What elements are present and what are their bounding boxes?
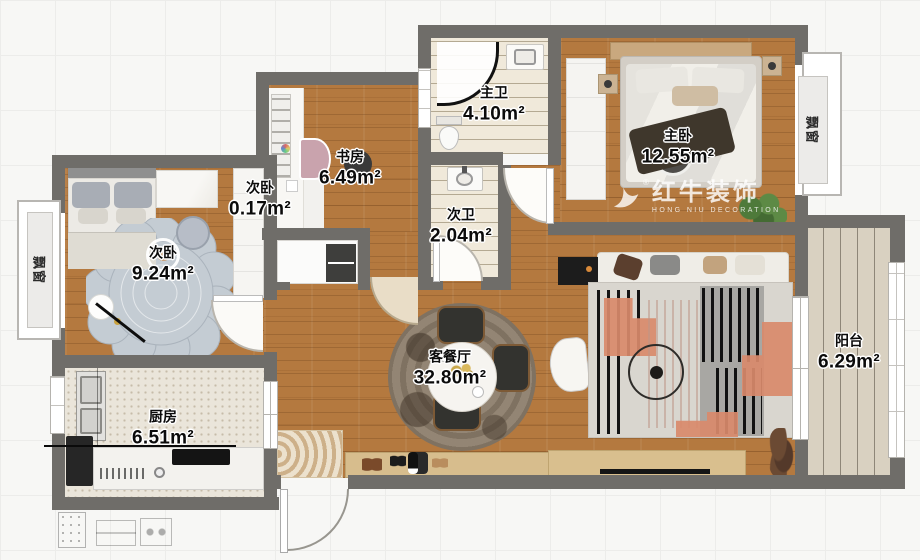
wall-study-top xyxy=(256,72,431,85)
fridge xyxy=(66,436,93,486)
sofa-pillow-tan xyxy=(703,256,727,274)
kettle xyxy=(154,467,165,478)
master-accent-pillow xyxy=(672,86,718,106)
watermark-text: 红牛装饰 HONG NIU DECORATION xyxy=(652,180,781,214)
room-label-kitchen: 厨房 6.51m² xyxy=(132,407,194,450)
wall-top-main xyxy=(418,25,808,38)
room-name-second-bedroom: 次卧 xyxy=(149,243,177,263)
wall-niche-top xyxy=(262,228,370,240)
wall-bottom-entry-left xyxy=(264,475,281,489)
dining-chair-right xyxy=(492,344,530,392)
masterbath-sink-basin xyxy=(514,49,536,65)
room-area-second-bedroom: 9.24m² xyxy=(132,264,194,286)
room-name-master-bedroom: 主卧 xyxy=(664,126,692,146)
room-area-kitchen: 6.51m² xyxy=(132,428,194,450)
wall-master-bottom xyxy=(548,222,808,235)
tv-panel xyxy=(558,257,598,285)
room-area-second-bath: 2.04m² xyxy=(430,226,492,248)
masterbath-door-leaf xyxy=(546,168,554,224)
room-area-master-bedroom: 12.55m² xyxy=(642,147,715,169)
wall-study-left xyxy=(256,72,269,168)
watermark-cn: 红牛装饰 xyxy=(652,180,781,206)
shoes-black-pair xyxy=(390,452,406,470)
room-name-balcony: 阳台 xyxy=(835,331,863,351)
bed2-cushion-right xyxy=(116,208,146,224)
bed2-pillow-right xyxy=(114,182,152,208)
room-name-master-bath: 主卫 xyxy=(480,83,508,103)
nightstand-right-lamp xyxy=(768,62,776,70)
bay-window-label-left: 飘窗 xyxy=(31,256,50,284)
room-name-kitchen: 厨房 xyxy=(149,407,177,427)
kitchen-window xyxy=(50,376,65,434)
wall-balcony-right-bottom xyxy=(890,458,905,489)
wall-master-right-lower xyxy=(795,195,808,228)
sofa-pillow-light xyxy=(735,255,765,275)
entry-door-swing xyxy=(287,489,349,551)
bedroom2-door-leaf xyxy=(213,295,263,302)
secondbath-tap xyxy=(462,166,467,173)
dining-chair-top xyxy=(437,306,485,344)
masterbath-window xyxy=(418,68,431,128)
desk-color-dot xyxy=(281,144,290,153)
entry-rug xyxy=(277,430,343,478)
shoes-brown-pair xyxy=(362,454,382,475)
room-name-second-bath: 次卫 xyxy=(447,205,475,225)
wall-mbath-bottom xyxy=(418,152,503,165)
wall-bottom-left xyxy=(52,497,279,510)
room-area-master-bath: 4.10m² xyxy=(463,104,525,126)
room-label-second-bedroom: 次卧 9.24m² xyxy=(132,243,194,286)
rug-stripes-right-1 xyxy=(702,288,762,362)
kitchen-sink-basin-top xyxy=(80,376,102,404)
wall-living-balcony-upper xyxy=(795,228,808,298)
wall-living-balcony-lower xyxy=(795,440,808,476)
wall-bedroom2-top xyxy=(52,155,269,168)
bed2-cushion-left xyxy=(78,208,108,224)
wall-kitchen-right-upper xyxy=(264,368,277,382)
floor-plan: 飘窗 飘窗 次卧 9.24m² 次卧 0.17m² 书房 6.49m² 主卫 4… xyxy=(0,0,920,560)
cad-line-vertical xyxy=(97,368,98,446)
wall-niche-right xyxy=(358,228,370,290)
coffee-table-center xyxy=(650,366,663,379)
room-area-living-dining: 32.80m² xyxy=(414,368,487,390)
watermark: ® 红牛装饰 HONG NIU DECORATION xyxy=(612,180,781,214)
cad-sketch-1 xyxy=(58,512,86,548)
nightstand-left-lamp xyxy=(604,80,612,88)
room-name-living-dining: 客餐厅 xyxy=(429,347,471,367)
wall-kitchen-right-lower xyxy=(264,448,277,497)
watermark-en: HONG NIU DECORATION xyxy=(652,207,781,214)
shoes-sandals-pair xyxy=(432,455,448,471)
wall-niche-bottom-stub xyxy=(264,282,290,290)
bed2-pillow-left xyxy=(72,182,110,208)
room-label-master-bedroom: 主卧 12.55m² xyxy=(642,126,715,169)
stove xyxy=(172,449,230,465)
entry-door-leaf xyxy=(280,489,288,553)
rug-stripes-left-2 xyxy=(597,356,625,434)
tv-on-cabinet xyxy=(600,469,710,474)
kitchen-sink-basin-bottom xyxy=(80,408,102,434)
secondbath-sink-basin xyxy=(456,172,473,186)
room-area-study: 6.49m² xyxy=(319,168,381,190)
wall-bottom-main xyxy=(348,475,905,489)
bull-logo-icon xyxy=(612,180,644,212)
cabinet-inset-shelf-line xyxy=(328,262,354,264)
balcony-window xyxy=(888,262,905,458)
room-label-living-dining: 客餐厅 32.80m² xyxy=(414,347,487,390)
room-area-balcony: 6.29m² xyxy=(818,352,880,374)
bed2-headboard xyxy=(68,168,156,178)
wall-study-mbath-divider-upper xyxy=(418,25,431,68)
cad-sketch-2 xyxy=(96,520,136,546)
room-name-study: 书房 xyxy=(336,147,364,167)
plant-branches xyxy=(768,428,794,478)
registered-mark: ® xyxy=(643,178,649,187)
room-label-second-bath: 次卫 2.04m² xyxy=(430,205,492,248)
tv-panel-light xyxy=(586,266,592,272)
wall-mbath-right xyxy=(548,25,561,165)
bedroom2-desk xyxy=(156,170,218,208)
room-label-balcony: 阳台 6.29m² xyxy=(818,331,880,374)
small-appliance-grille xyxy=(100,468,148,479)
room-label-master-bath: 主卫 4.10m² xyxy=(463,83,525,126)
room-label-study: 书房 6.49m² xyxy=(319,147,381,190)
wall-kitchen-top xyxy=(52,355,277,368)
shoes-sneakers-pair xyxy=(408,452,428,474)
room-area-closet: 0.17m² xyxy=(229,199,291,221)
cad-sketch-3 xyxy=(140,518,172,546)
room-name-closet: 次卧 xyxy=(246,178,274,198)
wall-sbath-bottom-right xyxy=(481,277,511,290)
room-label-closet: 次卧 0.17m² xyxy=(229,178,291,221)
wall-bedroom2-right-stub xyxy=(264,352,277,368)
sofa-pillow-gray xyxy=(650,255,680,275)
balcony-sliding-door xyxy=(792,296,809,440)
wall-balcony-top xyxy=(795,215,905,228)
kitchen-sliding-door xyxy=(263,381,278,449)
bay-window-label-right: 飘窗 xyxy=(804,116,823,144)
toilet-tank xyxy=(436,116,462,125)
